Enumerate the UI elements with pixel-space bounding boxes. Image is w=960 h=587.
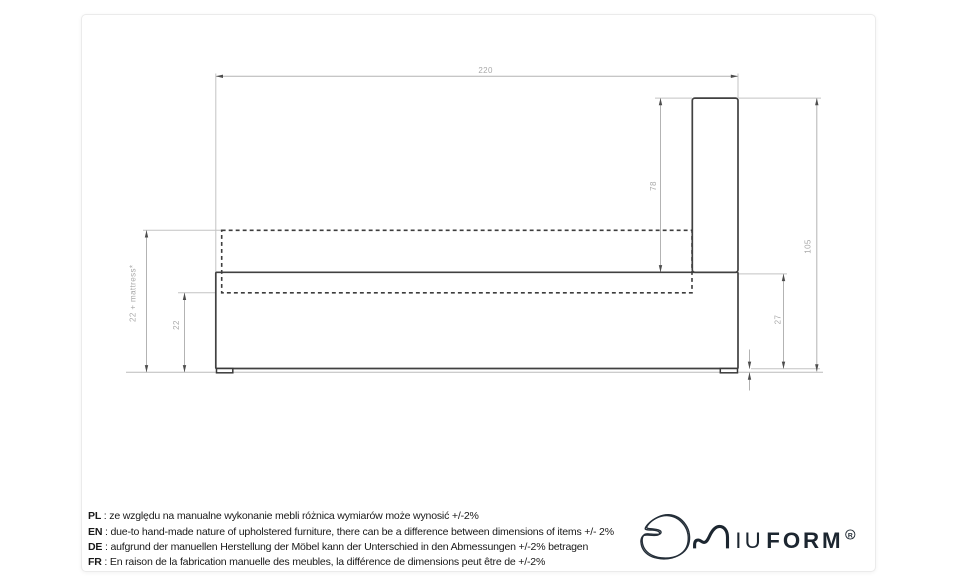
svg-text:105: 105 <box>804 239 813 254</box>
svg-text:R: R <box>848 533 853 540</box>
svg-text:78: 78 <box>649 181 658 191</box>
svg-text:FORM: FORM <box>766 528 843 553</box>
svg-text:22 + mattress*: 22 + mattress* <box>128 265 137 322</box>
svg-text:22: 22 <box>172 320 181 330</box>
svg-text:220: 220 <box>478 66 493 75</box>
svg-text:IU: IU <box>735 528 764 553</box>
svg-text:27: 27 <box>774 315 783 325</box>
